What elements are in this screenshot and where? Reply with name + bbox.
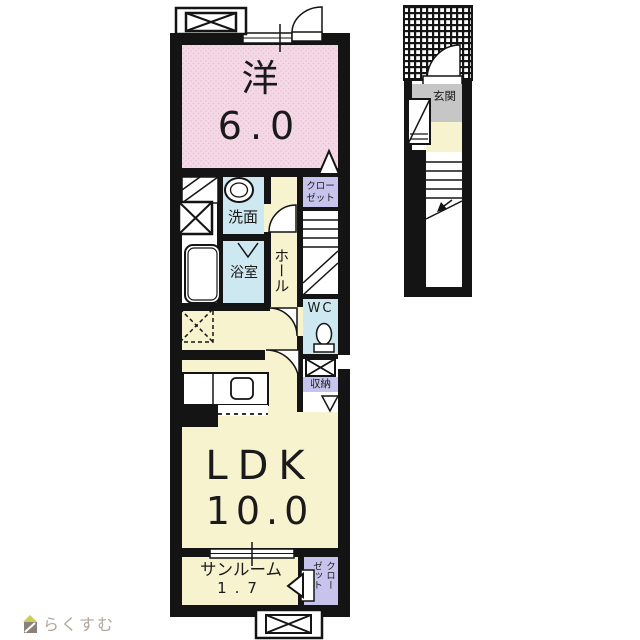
- floorplan-page: 洋 6.0 クロー ゼット 洗面 浴室 ホール WC 収納 LDK 10.0 サ…: [0, 0, 640, 640]
- washroom-label: 洗面: [221, 209, 265, 226]
- sunroom-label: サンルーム: [183, 561, 299, 580]
- sunroom-vent-icon: [256, 610, 322, 638]
- stairwell-floor: [426, 152, 462, 287]
- entrance-hall-floor: [426, 122, 462, 155]
- closet-sunroom-label: クロー ゼット: [306, 561, 336, 590]
- sunroom-size: 1.7: [183, 580, 299, 597]
- sink-icon: [225, 178, 253, 202]
- ldk-label: LDK: [182, 443, 338, 489]
- storage-hatch-icon: [306, 359, 335, 376]
- house-icon: [22, 613, 39, 634]
- closet-upper-label: クロー ゼット: [303, 181, 338, 204]
- wc-label: WC: [303, 302, 338, 317]
- ldk-size: 10.0: [182, 490, 338, 534]
- western-room-size: 6.0: [182, 105, 338, 149]
- western-room-door-arc: [292, 7, 322, 41]
- washer-pan-icon: [179, 202, 212, 234]
- western-room-label: 洋: [182, 58, 338, 101]
- storage-label: 収納: [303, 378, 338, 390]
- entrance-unit: [404, 6, 472, 297]
- bathtub-icon: [185, 245, 220, 303]
- shelf-hatch-icon: [182, 177, 218, 203]
- hall-label: ホール: [272, 240, 289, 300]
- storage-side-window: [338, 355, 350, 369]
- stairs-area-floor: [303, 211, 338, 294]
- entrance-label: 玄関: [426, 90, 463, 103]
- site-logo-text: らくすむ: [43, 611, 115, 635]
- balcony-window-icon: [176, 8, 246, 34]
- bathroom-label: 浴室: [221, 265, 267, 281]
- entrance-door-leaf: [423, 76, 462, 85]
- shoe-cabinet-icon: [408, 99, 430, 144]
- site-logo: らくすむ: [22, 611, 115, 635]
